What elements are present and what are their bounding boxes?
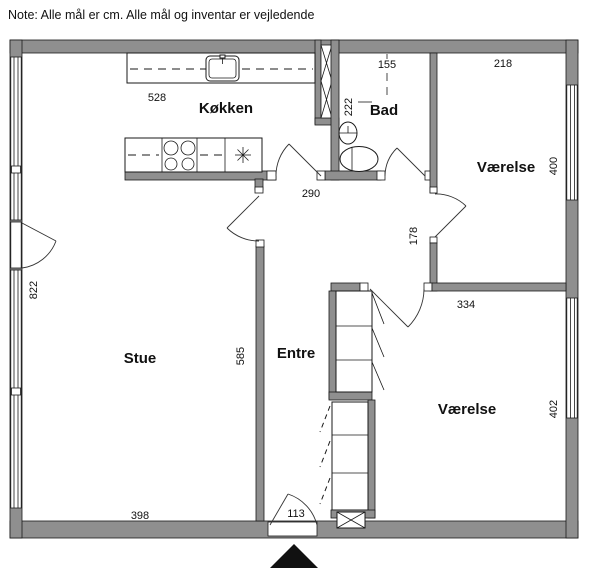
room-label-stue: Stue [124,350,157,367]
dim-bedroomtop-depth: 400 [548,157,560,175]
post-bedroomtop-lower [430,237,437,243]
wardrobe-lower [320,400,375,518]
post-bath-right [377,171,385,180]
note-text: Note: Alle mål er cm. Alle mål og invent… [8,8,314,22]
entry-shaft-box [337,512,365,528]
door-kitchen [276,144,321,176]
floor-plan-page: Note: Alle mål er cm. Alle mål og invent… [0,0,600,577]
dim-living-depth: 822 [28,281,40,299]
dim-bath-width: 155 [378,59,396,71]
window-right-upper [567,85,577,200]
wall-top [10,40,578,53]
dim-bath-depth: 222 [343,98,355,116]
wardrobe-upper [329,291,384,400]
door-bedroom-top [435,194,466,237]
balcony-door [11,222,56,268]
window-left-upper [11,57,21,220]
room-label-vaerelse-bottom: Værelse [438,401,496,418]
door-bath [385,148,425,176]
post-bedrooms-left [360,283,368,291]
post-bedrooms-right [424,283,432,291]
room-label-entre: Entre [277,345,315,362]
kitchen-sink-icon [206,55,239,81]
dim-kitchen-width: 528 [148,92,166,104]
dim-entry-door-width: 113 [287,508,305,520]
wall-bath-bottom [325,171,381,180]
dim-bedroombottom-depth: 402 [548,400,560,418]
room-label-koekken: Køkken [199,100,253,117]
post-kitchen-divider [267,171,276,180]
dim-living-wall: 585 [235,347,247,365]
kitchen-counter-top [127,53,315,83]
door-stue [227,196,259,241]
entrance-arrow-icon [270,544,318,568]
dim-bedroombottom-width: 334 [457,299,475,311]
room-label-bad: Bad [370,102,398,119]
dim-living-width: 398 [131,510,149,522]
wash-basin-icon [339,122,357,144]
wall-bedroomtop-upper [430,53,437,193]
room-label-vaerelse-top: Værelse [477,159,535,176]
toilet-icon [340,147,378,172]
floor-plan-drawing: Note: Alle mål er cm. Alle mål og invent… [0,0,600,577]
dim-hall-width: 290 [302,188,320,200]
wall-bedrooms-right [432,283,566,291]
window-left-lower [11,270,21,508]
wall-stue-entre [256,246,264,521]
wall-bedrooms-left [331,283,360,291]
dim-bedroomtop-width: 218 [494,58,512,70]
post-stub-hall [255,187,263,193]
post-bedroomtop-upper [430,187,437,193]
kitchen-counter-lower [125,138,262,172]
window-right-lower [567,298,577,418]
wall-bath-left [331,40,339,180]
windows [11,57,577,508]
dim-passage-width: 178 [408,227,420,245]
